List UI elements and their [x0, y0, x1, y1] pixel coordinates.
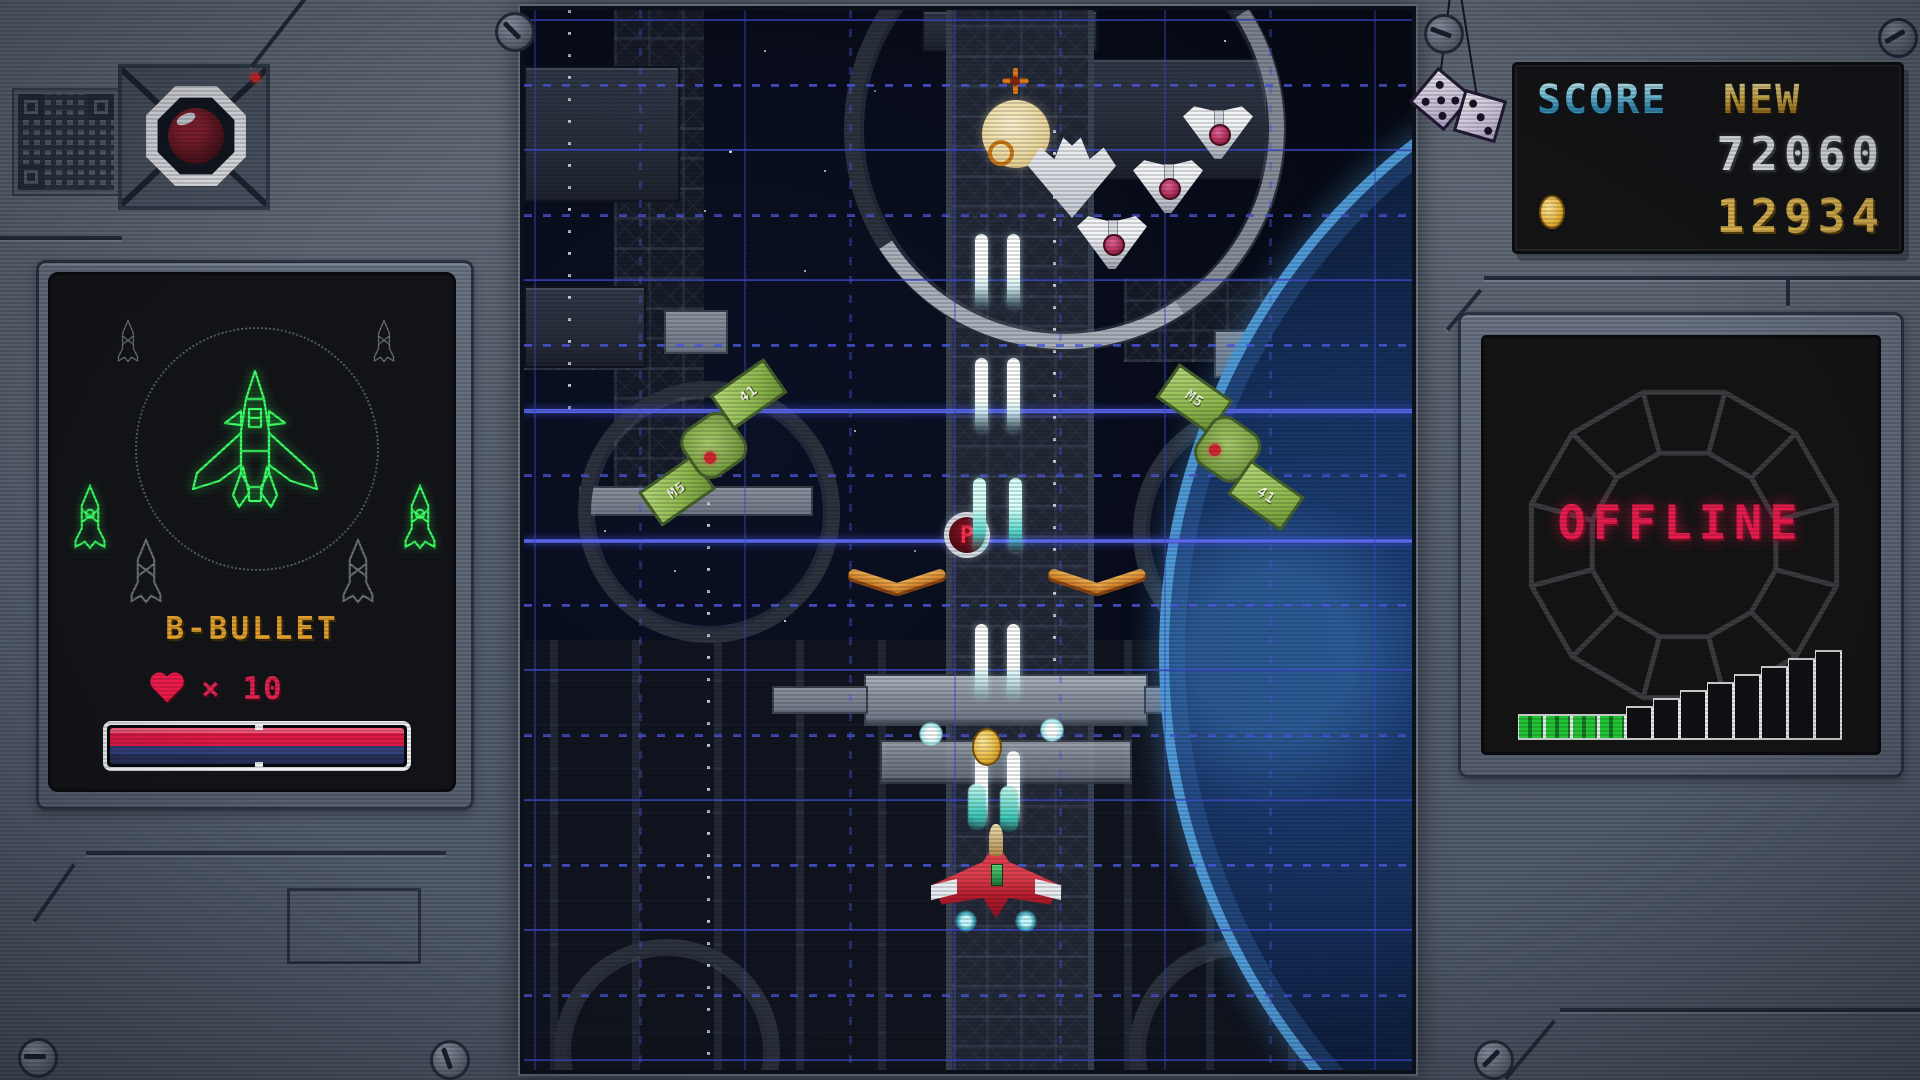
health-bar — [103, 721, 411, 771]
rocket-icon-gray — [113, 315, 143, 367]
ship-name-label: B-BULLET — [51, 611, 453, 647]
spark-orb — [919, 722, 943, 746]
rocket-icon-gray — [335, 537, 381, 605]
system-status-panel: OFFLINE — [1481, 335, 1881, 755]
coin-pickup — [972, 728, 1002, 766]
player-ship — [931, 824, 1061, 928]
screw-icon — [1424, 14, 1464, 54]
rocket-icon-gray — [369, 315, 399, 367]
coin-count: 12934 — [1717, 189, 1885, 243]
coin-icon — [1539, 195, 1565, 229]
heart-icon — [149, 673, 185, 705]
status-text: OFFLINE — [1484, 496, 1878, 551]
signal-gauge — [1518, 650, 1850, 740]
camera-led — [251, 73, 260, 82]
rocket-icon-green — [397, 483, 443, 551]
lives-count-label: × 10 — [201, 671, 284, 707]
ship-status-panel: B-BULLET × 10 — [48, 272, 456, 792]
new-label: NEW — [1723, 77, 1801, 123]
health-bar-fill — [110, 728, 404, 764]
score-label: SCORE — [1537, 77, 1667, 123]
security-camera-icon — [118, 64, 270, 210]
screw-icon — [430, 1040, 470, 1080]
spark-orb — [1040, 718, 1064, 742]
qr-code — [12, 88, 120, 196]
screw-icon — [18, 1038, 58, 1078]
game-screen: M5 41 M5 41 P — [0, 0, 1920, 1080]
status-panel-plate: OFFLINE — [1458, 312, 1904, 778]
camera-lens — [168, 108, 224, 164]
screw-icon — [495, 12, 535, 52]
rocket-icon-green — [67, 483, 113, 551]
screw-icon — [1878, 18, 1918, 58]
screw-icon — [1474, 1040, 1514, 1080]
score-panel: SCORE NEW 72060 12934 — [1512, 62, 1904, 254]
score-value: 72060 — [1717, 127, 1885, 181]
playfield[interactable]: M5 41 M5 41 P — [520, 6, 1416, 1074]
ship-wireframe-icon — [185, 367, 325, 517]
rocket-icon-gray — [123, 537, 169, 605]
